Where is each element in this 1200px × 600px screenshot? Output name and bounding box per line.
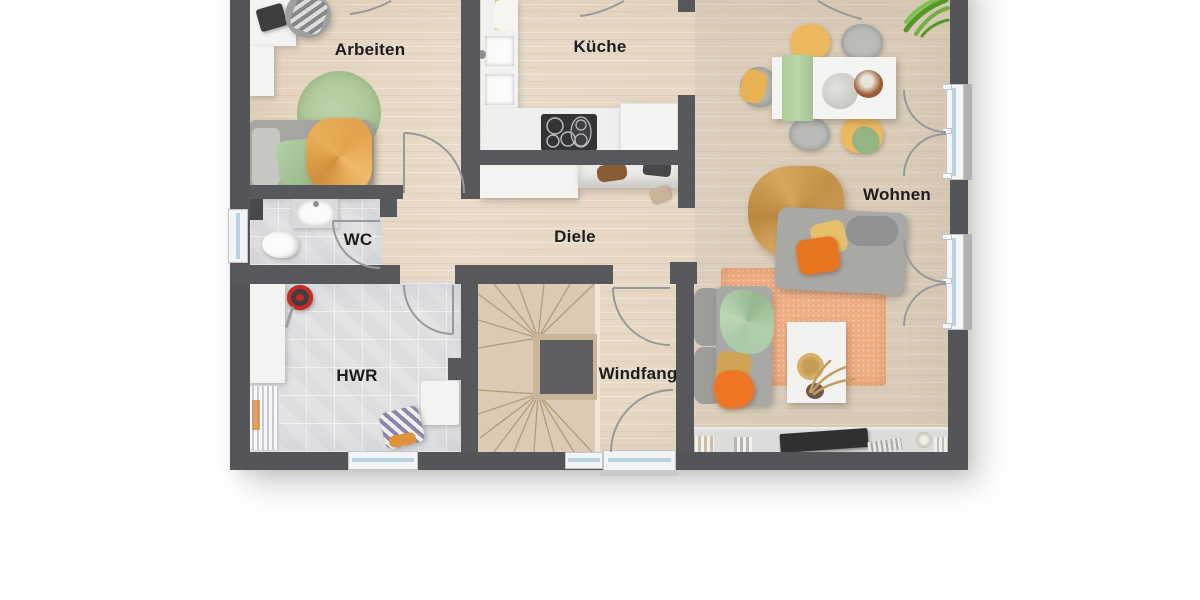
wall-windfang-corner [670,262,697,284]
wall-right-top [950,0,968,88]
window-right1-glass [952,88,956,176]
kitchen-cabinet-inset [485,74,514,105]
window-right1-outer [964,84,972,180]
dining-chair-gray-1 [841,24,883,61]
chimney-block [448,358,464,380]
window-right1-tab-mid [942,128,952,134]
room-label-hwr: HWR [336,366,377,386]
candle [916,432,932,448]
books-2 [734,437,752,452]
washing-machine [421,381,459,425]
books-1 [692,436,714,452]
room-label-diele: Diele [554,227,596,247]
window-hwr-glass [352,458,414,462]
window-sidelight-glass [568,458,600,462]
window-right2-outer [964,234,972,330]
window-right2-tab-bottom [942,323,952,329]
kitchen-decor [495,0,518,30]
cooktop-burners [541,114,597,151]
cooktop [541,114,597,151]
front-door-glass [608,458,671,462]
fridge [620,103,678,152]
orange-pillow [795,235,841,276]
sofa-green-blanket [720,290,774,354]
wall-right-mid [950,176,968,238]
hwr-cabinet [248,284,285,383]
stairwell-void [540,340,593,394]
toilet [262,231,299,258]
kitchen-sink-basin [485,36,514,66]
window-right2-tab-mid [942,278,952,284]
dining-chair-gray-3 [789,117,830,151]
wall-stairs-north [455,265,613,284]
staircase-drawing [478,284,600,452]
table-runner [782,55,813,121]
window-wc-glass [236,213,240,259]
faucet [313,201,319,207]
daybed-pillow [252,128,280,186]
window-right2-glass [952,238,956,326]
room-label-windfang: Windfang [599,364,678,384]
fruit-bowl [854,70,883,98]
staircase [478,284,600,452]
laundry-on-rack [252,400,260,430]
flower-bouquet [822,73,858,109]
chaise-headrest [846,216,898,246]
sideboard-arbeiten [248,46,274,96]
woven-tray [797,353,824,380]
wall-kueche-east-nub [678,0,695,12]
window-right1-tab-bottom [942,173,952,179]
window-right1-tab-top [942,84,952,90]
window-right2-tab-top [942,234,952,240]
vase [806,383,824,399]
wall-wc-hwr [230,265,400,284]
wall-kueche-south [480,150,678,165]
orange-blanket [306,118,372,194]
wall-windfang-east [676,284,694,452]
wall-kueche-east [678,95,695,208]
wall-right-bottom [948,330,968,454]
floorplan-canvas: Arbeiten Küche Wohnen WC Diele HWR Windf… [0,0,1200,600]
wall-wc-east [380,190,397,217]
room-label-wohnen: Wohnen [863,185,931,205]
room-label-arbeiten: Arbeiten [335,40,406,60]
room-label-kueche: Küche [574,37,627,57]
room-label-wc: WC [344,230,373,250]
radiator [249,197,263,220]
wall-arbeiten-kueche [461,0,480,199]
